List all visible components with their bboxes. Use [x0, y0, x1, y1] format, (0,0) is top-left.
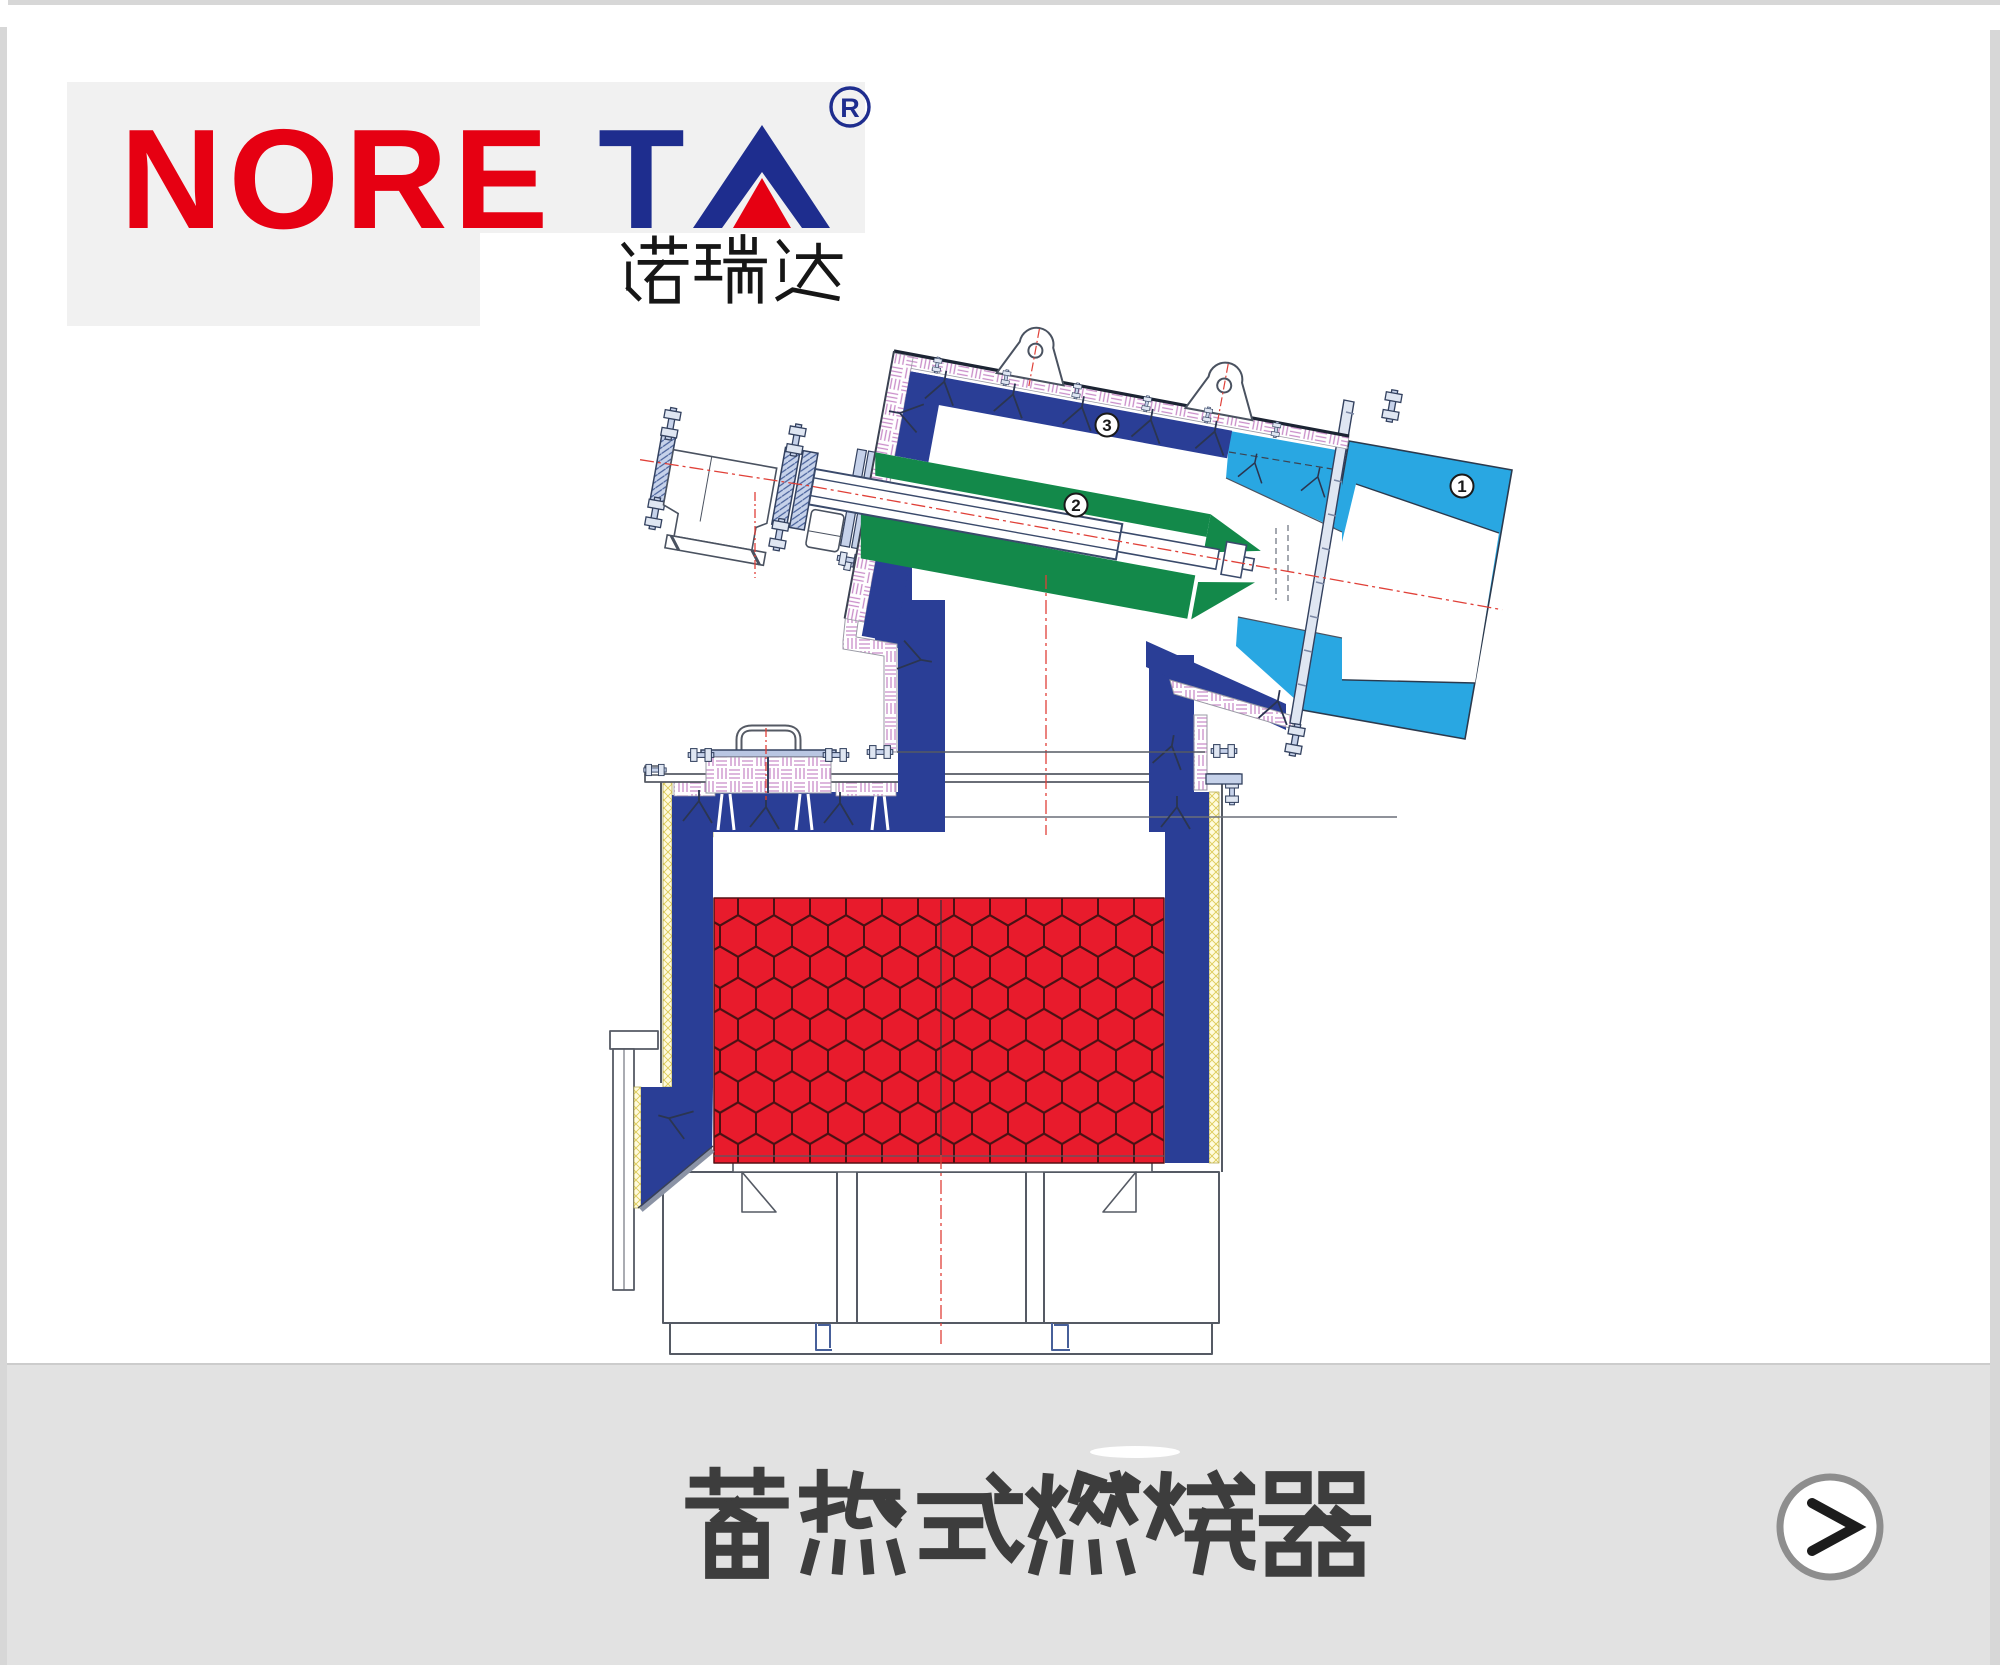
svg-text:1: 1 [1457, 477, 1466, 496]
svg-text:NORE: NORE [120, 100, 554, 259]
svg-text:T: T [598, 100, 685, 259]
svg-text:3: 3 [1102, 416, 1111, 435]
svg-text:R: R [840, 93, 860, 123]
svg-text:2: 2 [1071, 496, 1080, 515]
